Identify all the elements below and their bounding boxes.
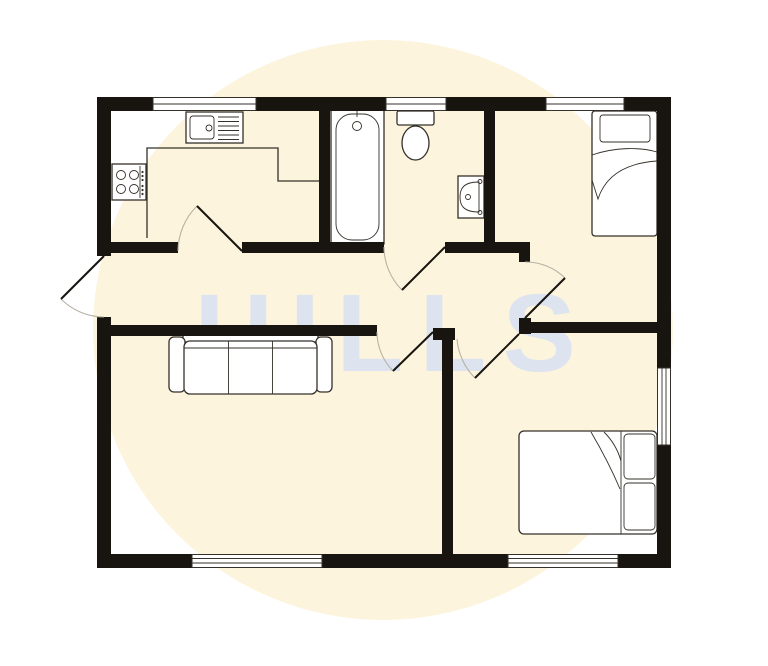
wall-segment (657, 111, 671, 554)
bedroom-top-right (592, 111, 657, 236)
wall-segment (97, 242, 178, 253)
wall-segment (531, 322, 657, 333)
wall-segment (97, 111, 111, 256)
bathtub (331, 110, 384, 244)
wall-segment (319, 111, 330, 242)
wall-segment (484, 111, 495, 242)
window (192, 555, 322, 568)
wall-segment (433, 328, 455, 340)
sofa-arm-left (169, 337, 185, 392)
double-bed (519, 431, 657, 534)
sofa (169, 335, 332, 394)
sofa-arm-right (316, 337, 332, 392)
toilet-cistern (397, 111, 434, 125)
wall-segment (242, 242, 384, 253)
wall-segment (97, 317, 111, 554)
window (508, 555, 618, 568)
floor-plan-page: HILLS (0, 0, 768, 666)
floor-plan: HILLS (0, 0, 768, 666)
wall-segment (519, 318, 531, 334)
hob (112, 164, 146, 200)
wall-segment (445, 242, 530, 253)
window (386, 98, 446, 111)
sofa-seat (184, 341, 317, 394)
toilet-bowl (402, 126, 429, 160)
wall-segment (442, 340, 453, 554)
bedroom-bottom-right (519, 431, 657, 534)
wash-basin (458, 176, 484, 218)
kitchen-sink (186, 112, 243, 143)
single-bed (592, 111, 657, 236)
hob-body (112, 164, 146, 200)
wall-segment (519, 253, 530, 262)
window (658, 368, 671, 445)
window (546, 98, 624, 111)
wall-segment (111, 325, 377, 336)
window (153, 98, 256, 111)
living-room (169, 335, 332, 394)
